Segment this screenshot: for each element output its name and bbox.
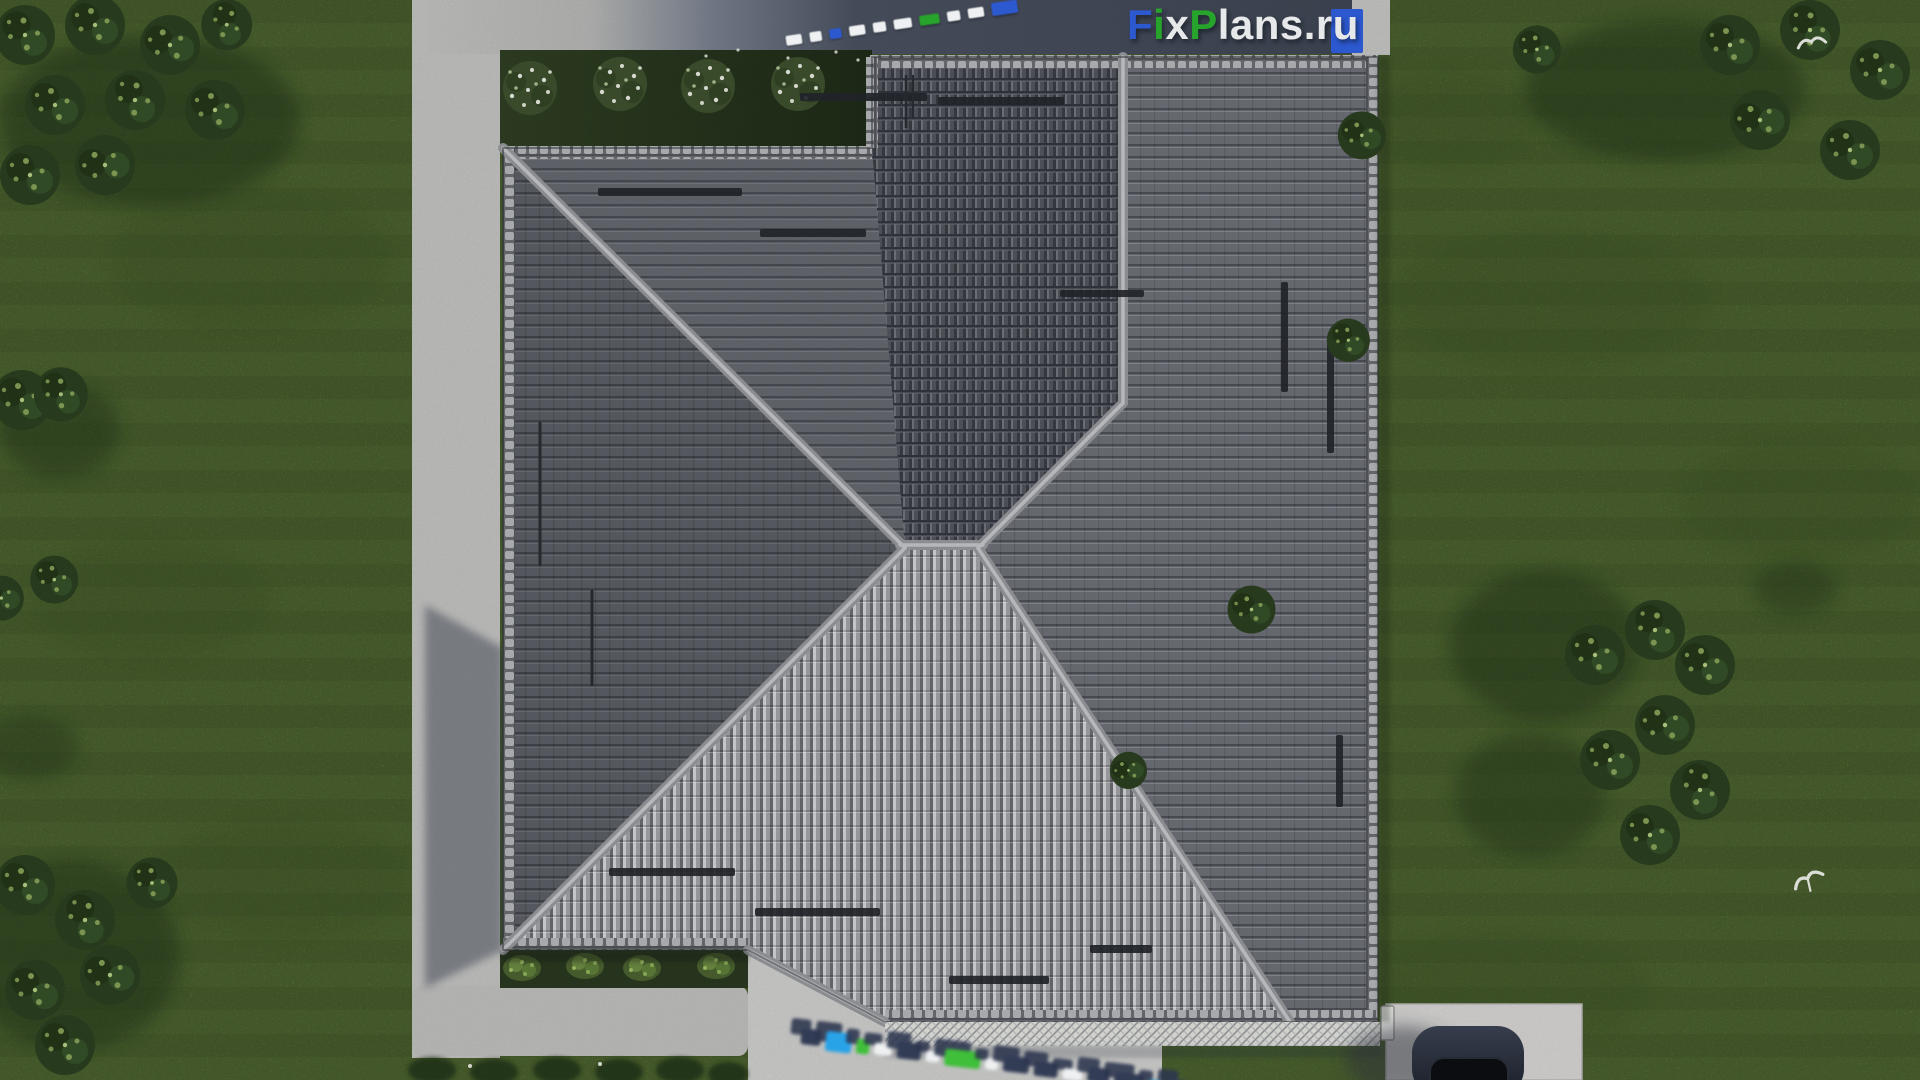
watermark-dash [829, 27, 842, 39]
logo-letter: lans [1218, 1, 1304, 48]
film-grain [0, 0, 1920, 1080]
logo-letter: u [1333, 2, 1359, 48]
logo-letter: F [1127, 1, 1153, 48]
watermark-dash [893, 17, 912, 30]
watermark-dash [849, 24, 866, 36]
watermark-glyph [873, 1042, 892, 1056]
watermark-dash [785, 33, 802, 45]
watermark-glyph [1113, 1072, 1145, 1080]
logo-letter: i [1153, 1, 1165, 48]
watermark-glyph [1087, 1067, 1111, 1080]
watermark-glyph [985, 1058, 999, 1070]
watermark-dash [967, 6, 984, 18]
logo-letter: P [1189, 1, 1218, 48]
watermark-glyph [1062, 1068, 1083, 1080]
watermark-glyph [825, 1031, 853, 1054]
watermark-glyph [944, 1048, 982, 1069]
aerial-render: FixPlans.ru [0, 0, 1920, 1080]
fixplans-logo: FixPlans.ru [1127, 2, 1359, 48]
watermark-dash [872, 21, 886, 33]
watermark-glyph [925, 1050, 940, 1063]
watermark-dash [946, 10, 960, 22]
logo-letter: x [1165, 1, 1189, 48]
logo-letter: r [1316, 1, 1333, 48]
watermark-glyph [855, 1038, 870, 1054]
watermark-glyph [896, 1041, 922, 1061]
watermark-dash [919, 13, 940, 26]
site-plan-render [0, 0, 1920, 1080]
watermark-glyph [1002, 1055, 1030, 1074]
watermark-glyph [800, 1028, 822, 1046]
watermark-glyph [1033, 1061, 1059, 1079]
logo-letter: . [1304, 1, 1316, 48]
watermark-dash [809, 30, 822, 42]
